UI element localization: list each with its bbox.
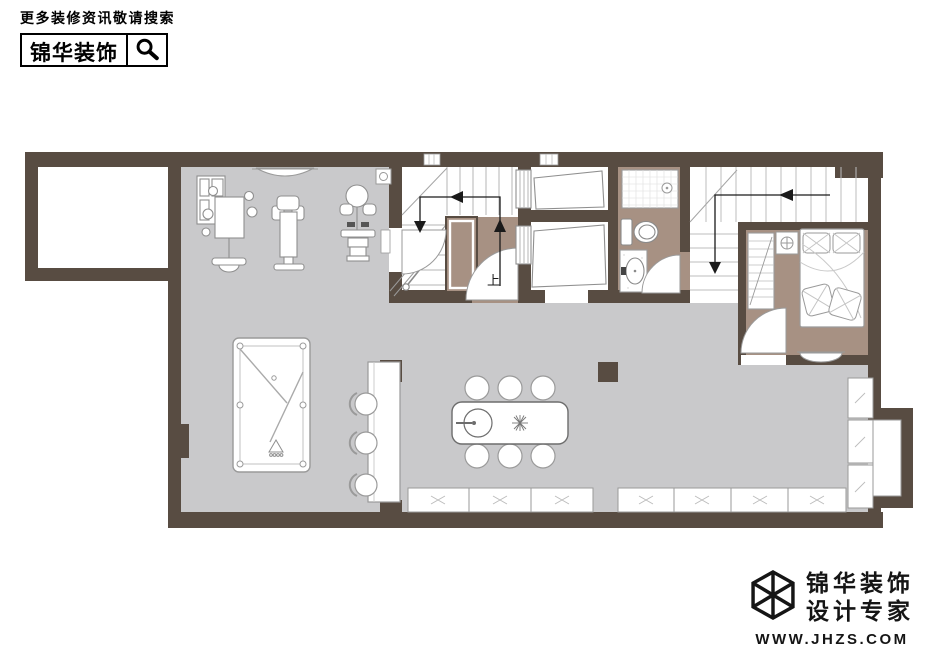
plant-table: [776, 232, 798, 254]
brand-name: 锦华装饰: [22, 35, 126, 65]
cabinets-bottom: [408, 488, 846, 512]
footer-brand-top: 锦华装饰: [806, 570, 914, 597]
magnifier-icon: [128, 35, 166, 65]
footer-website: WWW.JHZS.COM: [750, 631, 914, 648]
toilet: [621, 219, 658, 245]
louver-door: [516, 170, 531, 208]
cube-wireframe-icon: [750, 569, 796, 626]
louver-door: [516, 226, 531, 264]
closet-a-item: [534, 171, 604, 209]
dining-set: [452, 376, 568, 468]
brand-logo-box: 锦华装饰: [20, 33, 168, 67]
wardrobe: [748, 233, 774, 309]
lightwell-room: [38, 167, 168, 268]
header-tagline: 更多装修资讯敬请搜索: [20, 8, 175, 28]
table-plant: [512, 415, 528, 431]
footer: 锦华装饰 设计专家 WWW.JHZS.COM: [750, 569, 914, 648]
bed: [800, 229, 864, 327]
wall-niche: [381, 230, 390, 253]
shower: [622, 170, 678, 208]
stair-up-label: 上: [487, 273, 500, 288]
bay-window-seat: [873, 420, 901, 496]
footer-brand-bottom: 设计专家: [806, 598, 914, 625]
closet-b-item: [532, 225, 606, 287]
header: 更多装修资讯敬请搜索 锦华装饰: [20, 8, 175, 67]
pool-table: [233, 338, 310, 472]
floor-plan: 上: [0, 0, 940, 664]
wall-device: [376, 169, 391, 184]
